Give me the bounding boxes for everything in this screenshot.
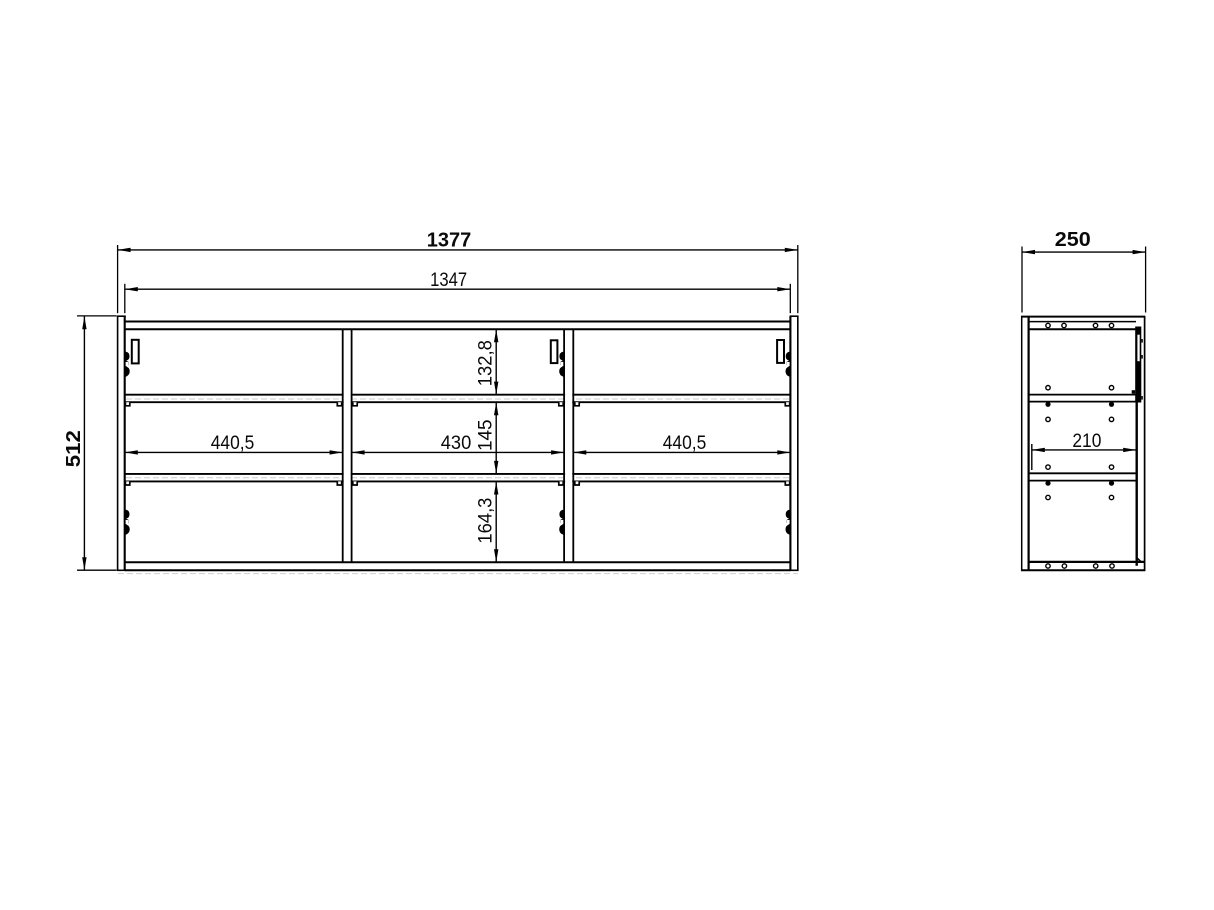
svg-text:440,5: 440,5 [211, 433, 255, 454]
svg-text:430: 430 [441, 433, 472, 454]
svg-text:1347: 1347 [430, 270, 467, 291]
svg-text:132,8: 132,8 [476, 340, 497, 386]
svg-text:164,3: 164,3 [476, 498, 497, 544]
svg-text:1377: 1377 [427, 228, 472, 251]
svg-text:210: 210 [1072, 431, 1101, 452]
svg-text:512: 512 [62, 430, 85, 467]
svg-text:440,5: 440,5 [663, 433, 707, 454]
svg-text:145: 145 [476, 419, 497, 451]
svg-text:250: 250 [1055, 228, 1091, 251]
